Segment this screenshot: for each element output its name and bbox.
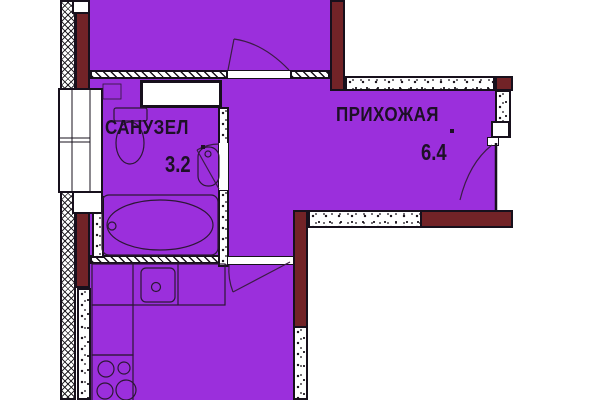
door-opening-top-room — [228, 70, 290, 79]
window-sill — [72, 191, 103, 214]
room-prihozhaya-hall — [228, 76, 497, 212]
area-dot-sanuzel — [201, 145, 205, 149]
room-top — [90, 0, 330, 72]
door-opening-kitchen — [228, 256, 293, 265]
wall-brick-kitchen-right — [293, 210, 308, 328]
area-dot-prihozhaya — [450, 129, 454, 133]
label-sanuzel: САНУЗЕЛ — [105, 117, 189, 140]
ventilation-shaft-icon — [140, 80, 222, 108]
wall-hall-bottom — [308, 210, 422, 228]
label-prihozhaya: ПРИХОЖАЯ — [336, 104, 439, 127]
window-icon — [58, 88, 103, 193]
entrance-step — [487, 137, 499, 146]
wall-partition-top-right — [290, 70, 330, 79]
entrance-sill — [491, 121, 510, 138]
wall-kitchen-right-lower — [293, 326, 308, 400]
wall-kitchen-left — [77, 288, 91, 400]
door-opening-sanuzel — [218, 143, 229, 190]
wall-partition-bath — [90, 255, 225, 264]
wall-brick-hall-top-end — [495, 76, 513, 91]
wall-brick-top-vertical — [330, 0, 345, 91]
area-sanuzel: 3.2 — [165, 151, 191, 178]
wall-sanuzel-upper — [218, 107, 229, 145]
wall-brick-left-top — [75, 12, 90, 90]
floor-plan: САНУЗЕЛ 3.2 ПРИХОЖАЯ 6.4 — [0, 0, 600, 400]
wall-cap-top-left — [72, 0, 90, 14]
wall-partition-top-left — [90, 70, 228, 79]
wall-brick-left-mid — [75, 210, 90, 288]
wall-hall-top — [345, 76, 495, 91]
room-kitchen — [90, 262, 293, 400]
wall-brick-hall-bottom — [420, 210, 513, 228]
area-prihozhaya: 6.4 — [421, 139, 447, 166]
